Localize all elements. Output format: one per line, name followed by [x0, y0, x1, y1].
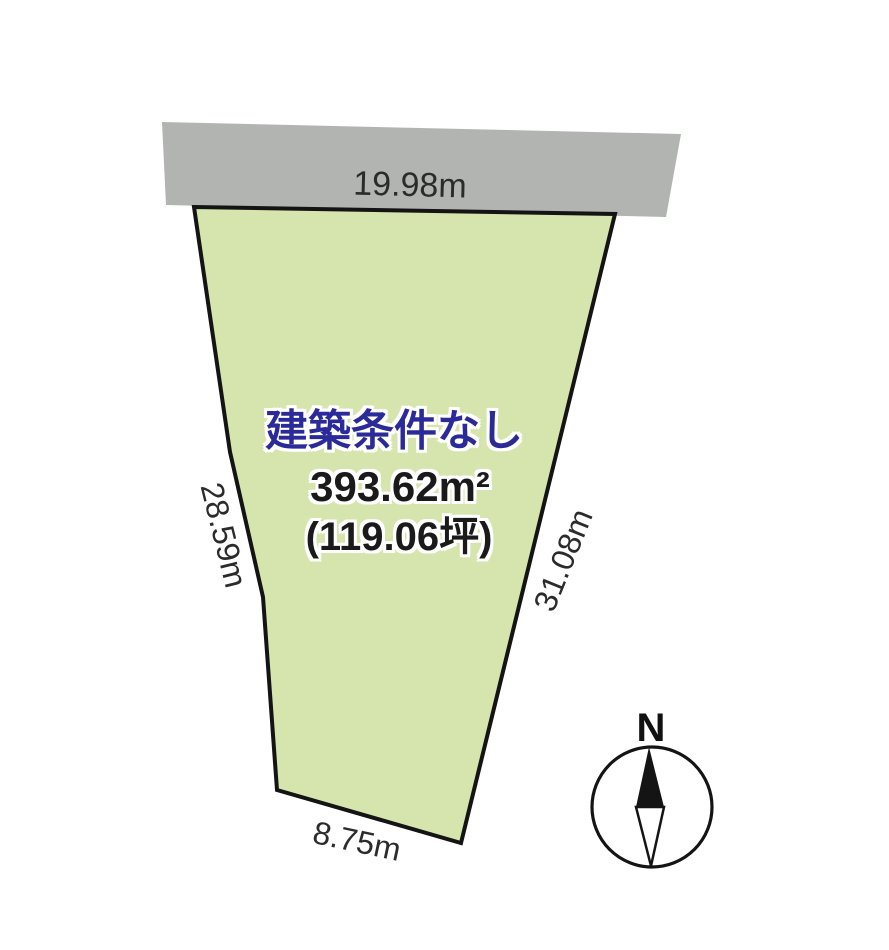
plot-area-square-meters: 393.62m²: [310, 466, 490, 508]
plot-area-tsubo: (119.06坪): [306, 517, 493, 557]
compass-rose-icon: [592, 747, 712, 867]
dimension-top-road-frontage: 19.98m: [353, 167, 467, 204]
land-plot-diagram: 19.98m 28.59m 31.08m 8.75m 建築条件なし 393.62…: [0, 0, 889, 950]
building-condition-text: 建築条件なし: [265, 411, 523, 454]
compass-north-label: N: [637, 708, 666, 748]
